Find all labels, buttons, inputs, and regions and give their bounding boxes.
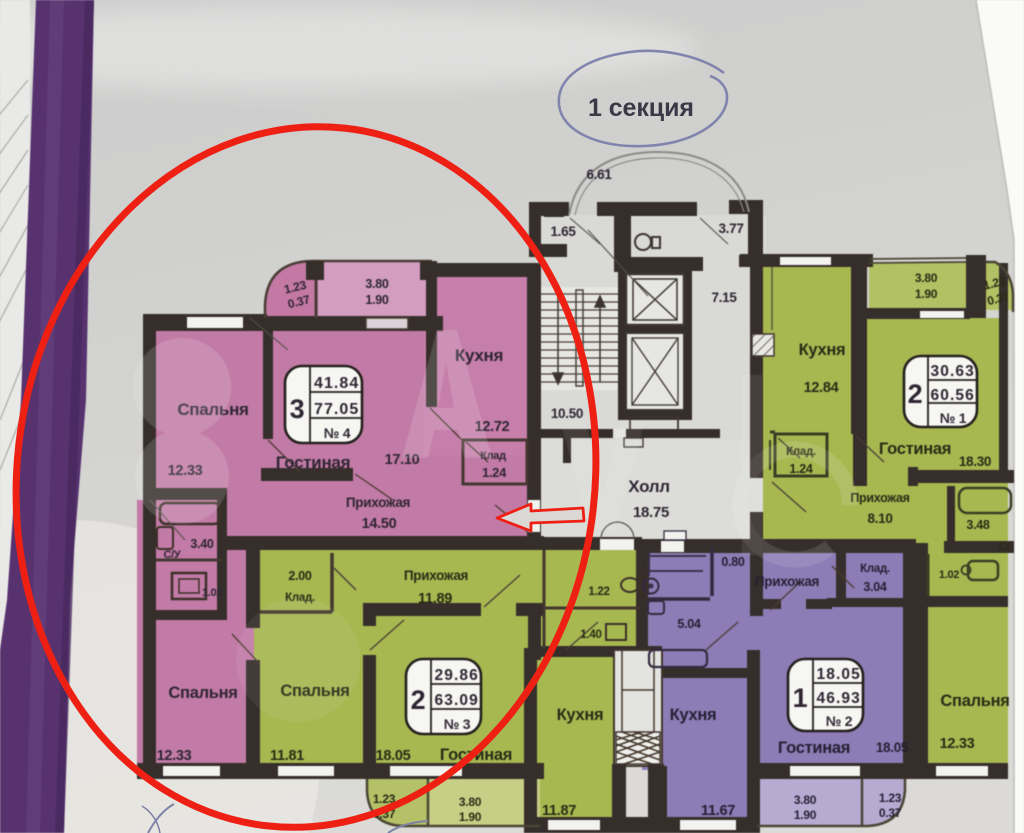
svg-text:0.37: 0.37 <box>879 806 902 820</box>
svg-text:0.80: 0.80 <box>721 555 744 569</box>
svg-text:Кухня: Кухня <box>670 706 717 724</box>
svg-text:63.09: 63.09 <box>435 692 479 709</box>
svg-text:№ 1: № 1 <box>940 410 967 426</box>
svg-text:2: 2 <box>411 685 426 715</box>
svg-text:3.80: 3.80 <box>915 271 938 285</box>
svg-text:1.90: 1.90 <box>459 810 482 824</box>
svg-text:3.77: 3.77 <box>718 221 743 236</box>
svg-text:18.05: 18.05 <box>817 666 861 683</box>
svg-text:2: 2 <box>908 379 923 409</box>
svg-text:77.05: 77.05 <box>314 401 358 418</box>
svg-text:10.50: 10.50 <box>551 406 583 421</box>
svg-text:3.48: 3.48 <box>966 518 989 532</box>
svg-text:1.23: 1.23 <box>879 791 902 805</box>
svg-text:1: 1 <box>793 683 808 713</box>
svg-text:11.67: 11.67 <box>701 803 735 819</box>
svg-text:Прихожая: Прихожая <box>850 491 909 505</box>
svg-text:11.81: 11.81 <box>270 748 304 764</box>
svg-text:Спальня: Спальня <box>940 692 1009 710</box>
svg-text:Прихожая: Прихожая <box>404 568 468 583</box>
svg-text:46.93: 46.93 <box>817 690 861 707</box>
svg-text:1.24: 1.24 <box>482 465 507 480</box>
svg-text:14.50: 14.50 <box>362 516 397 532</box>
svg-text:1.65: 1.65 <box>550 224 576 239</box>
svg-text:С/У: С/У <box>164 549 181 561</box>
svg-text:3.40: 3.40 <box>190 537 213 551</box>
svg-text:№ 4: № 4 <box>324 425 351 441</box>
svg-text:1.02: 1.02 <box>202 587 222 599</box>
svg-text:11.87: 11.87 <box>542 803 576 819</box>
svg-text:5.04: 5.04 <box>677 617 700 631</box>
svg-text:7.15: 7.15 <box>711 290 737 305</box>
svg-text:60.56: 60.56 <box>931 387 975 404</box>
svg-text:Гостиная: Гостиная <box>879 440 951 458</box>
svg-text:1.90: 1.90 <box>915 287 938 301</box>
svg-text:Кухня: Кухня <box>557 706 604 724</box>
svg-text:№ 3: № 3 <box>444 716 471 732</box>
svg-text:Холл: Холл <box>628 477 669 496</box>
svg-text:Кухня: Кухня <box>799 341 846 359</box>
svg-text:1.40: 1.40 <box>580 629 601 641</box>
svg-text:11.89: 11.89 <box>418 591 452 607</box>
svg-text:41.84: 41.84 <box>314 375 358 392</box>
svg-text:3.04: 3.04 <box>863 580 886 594</box>
svg-text:1.90: 1.90 <box>365 293 388 307</box>
svg-text:1.02: 1.02 <box>939 569 959 581</box>
svg-text:6.61: 6.61 <box>586 167 612 182</box>
svg-text:3.80: 3.80 <box>794 793 817 807</box>
svg-text:3.80: 3.80 <box>365 277 388 291</box>
svg-text:Гостиная: Гостиная <box>276 453 350 472</box>
svg-text:1.22: 1.22 <box>588 586 609 598</box>
svg-text:Прихожая: Прихожая <box>755 574 819 589</box>
svg-text:Гостиная: Гостиная <box>778 739 850 757</box>
svg-text:18.05: 18.05 <box>876 740 909 755</box>
svg-text:Клад.: Клад. <box>860 563 890 575</box>
svg-text:18.30: 18.30 <box>959 454 991 469</box>
svg-text:12.33: 12.33 <box>940 736 975 752</box>
svg-text:18.05: 18.05 <box>376 748 411 764</box>
svg-text:№ 2: № 2 <box>826 713 853 729</box>
svg-text:12.33: 12.33 <box>157 748 192 764</box>
svg-text:1 секция: 1 секция <box>588 94 694 122</box>
svg-text:Спальня: Спальня <box>168 684 237 702</box>
svg-text:С/: С/ <box>999 541 1010 553</box>
svg-text:1.90: 1.90 <box>794 808 817 822</box>
svg-text:18.75: 18.75 <box>633 504 669 521</box>
svg-text:1.24: 1.24 <box>789 462 812 476</box>
svg-text:3: 3 <box>290 394 305 424</box>
svg-text:30.63: 30.63 <box>931 363 975 380</box>
svg-text:2.00: 2.00 <box>288 569 311 583</box>
svg-text:Прихожая: Прихожая <box>346 495 410 510</box>
svg-text:8.10: 8.10 <box>867 511 892 526</box>
svg-text:3.80: 3.80 <box>459 795 482 809</box>
svg-text:29.86: 29.86 <box>435 667 479 684</box>
svg-text:12.84: 12.84 <box>804 380 839 396</box>
